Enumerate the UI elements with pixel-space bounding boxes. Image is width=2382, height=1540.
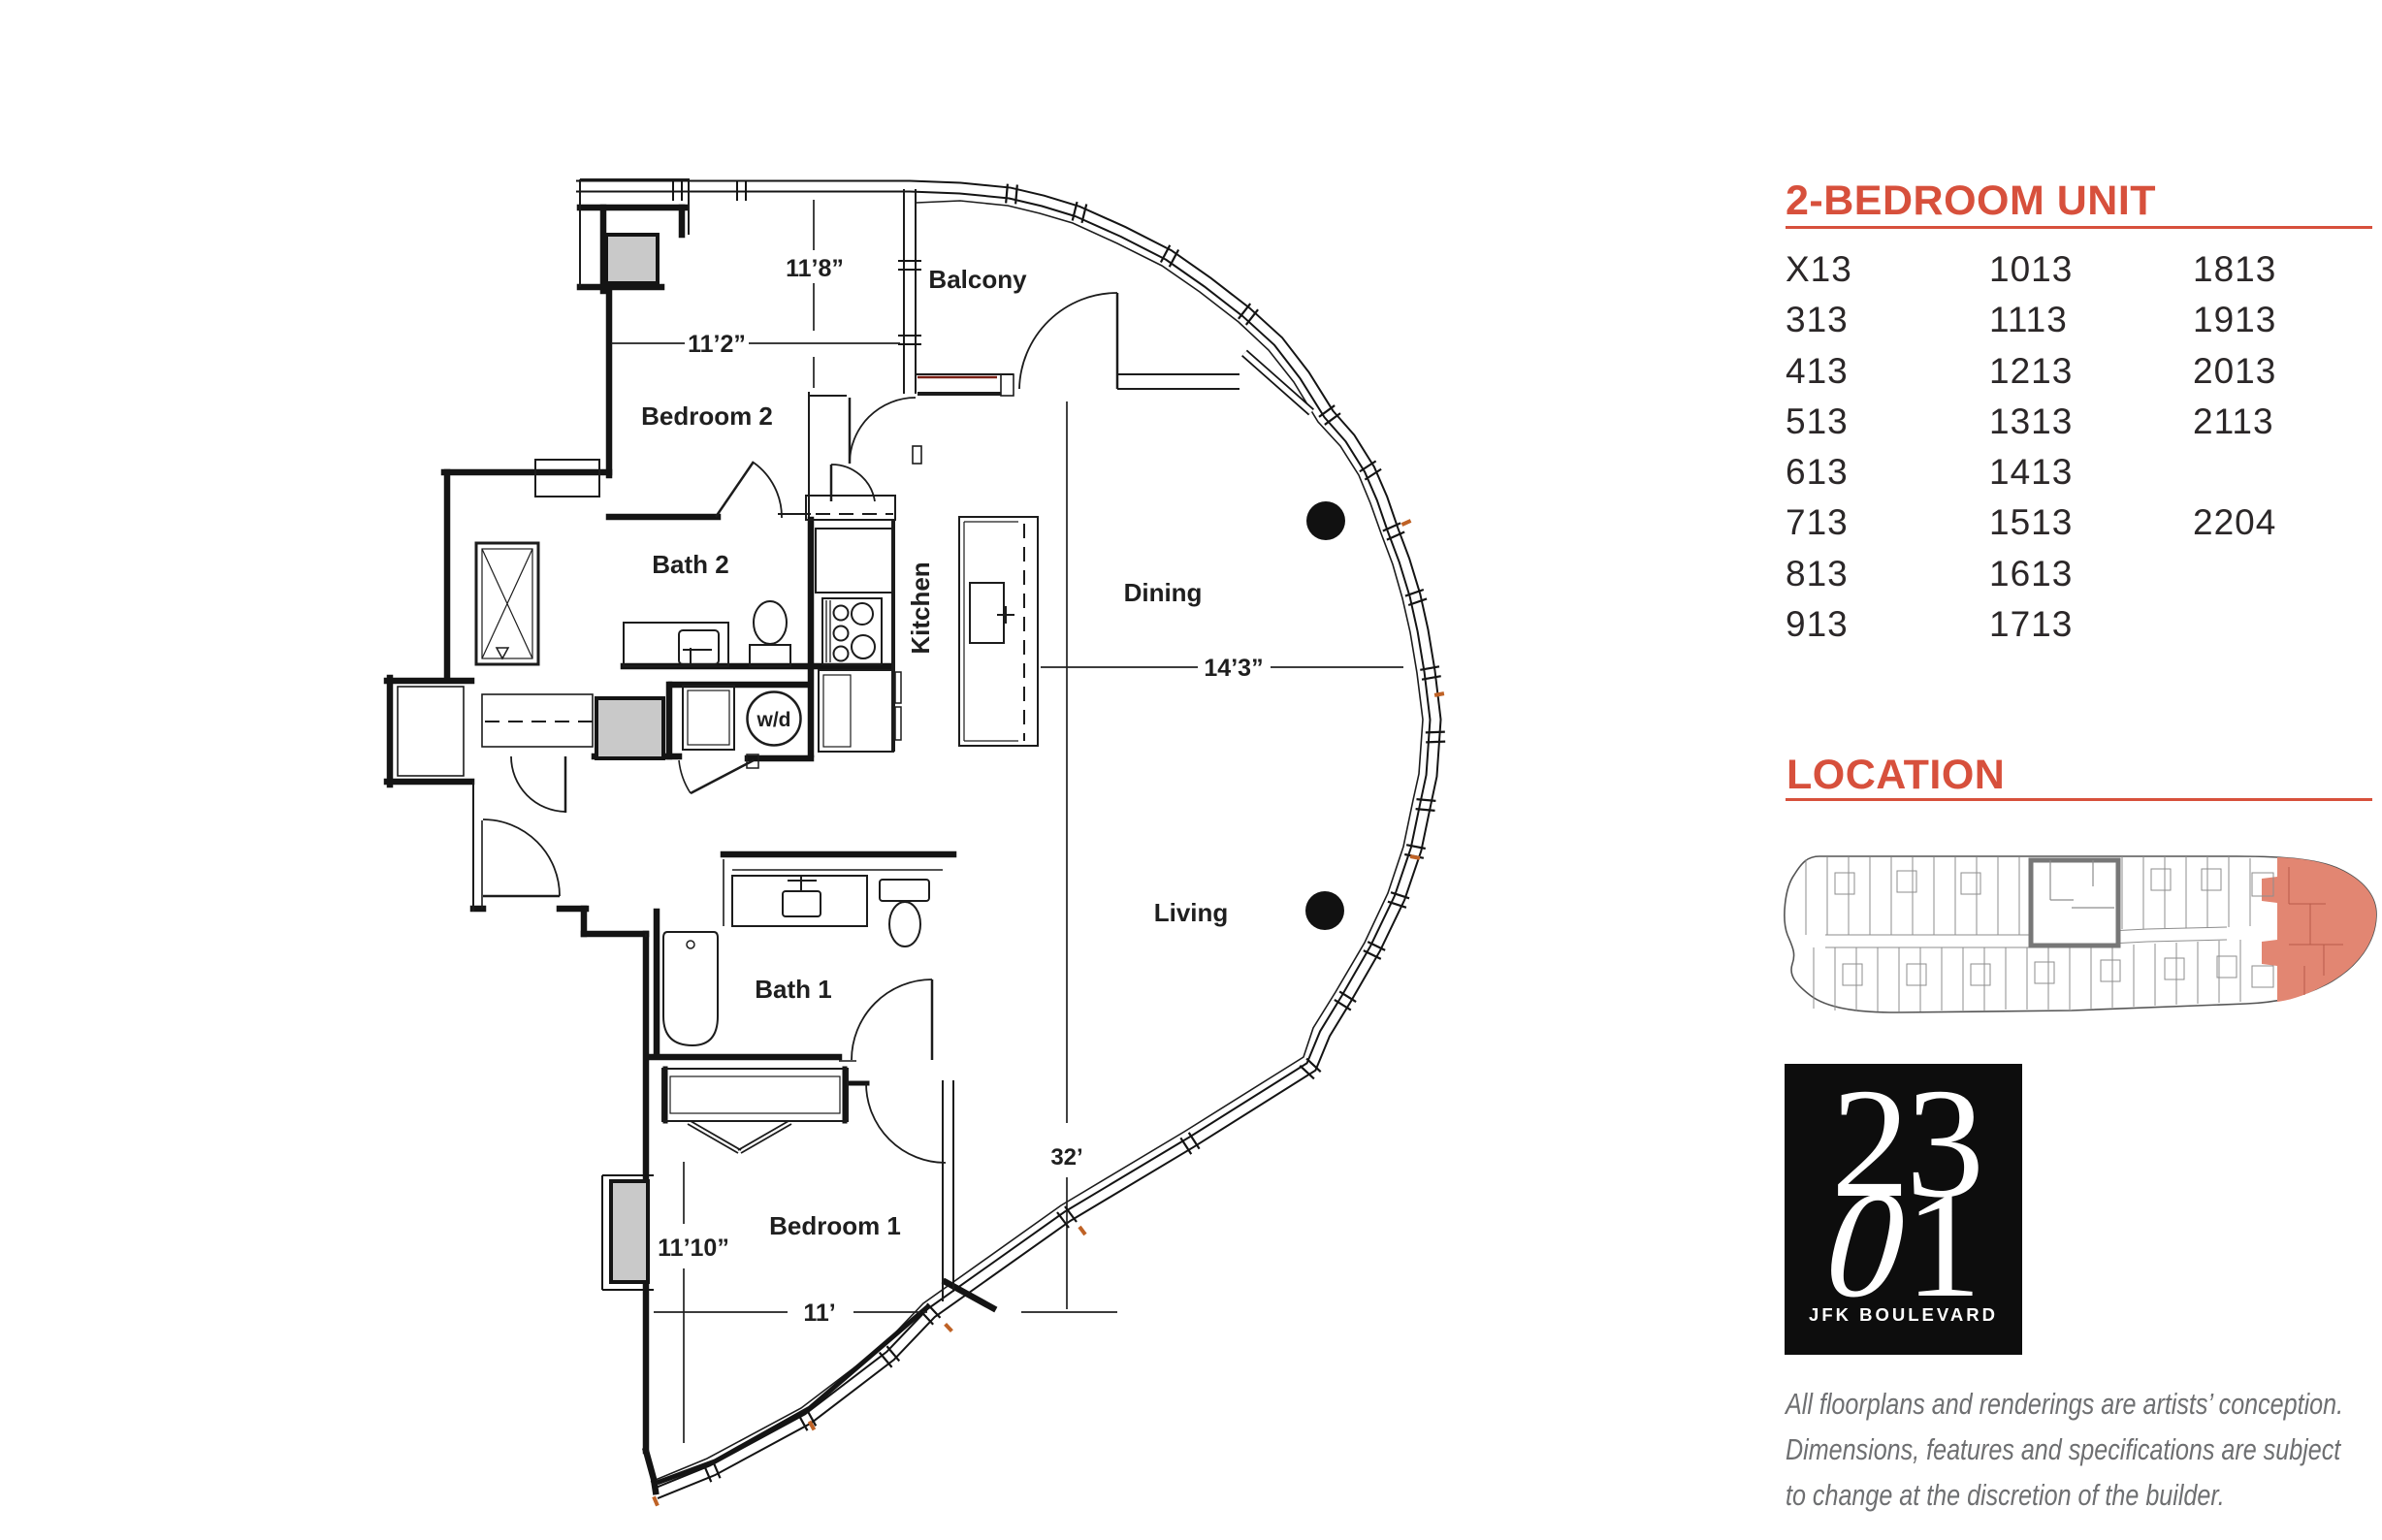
svg-text:11’10”: 11’10”: [658, 1235, 729, 1262]
svg-text:11’2”: 11’2”: [688, 331, 746, 358]
svg-text:Kitchen: Kitchen: [906, 561, 935, 654]
svg-text:Living: Living: [1154, 898, 1229, 927]
svg-text:Bath 2: Bath 2: [652, 550, 728, 579]
svg-text:32’: 32’: [1050, 1144, 1082, 1171]
svg-text:Bedroom 2: Bedroom 2: [641, 401, 773, 431]
svg-text:Bedroom 1: Bedroom 1: [769, 1211, 901, 1240]
svg-text:Bath 1: Bath 1: [755, 975, 831, 1004]
svg-text:Balcony: Balcony: [928, 265, 1027, 294]
svg-text:11’: 11’: [803, 1299, 835, 1327]
svg-text:11’8”: 11’8”: [786, 255, 844, 282]
svg-text:14’3”: 14’3”: [1204, 655, 1263, 682]
svg-text:w/d: w/d: [756, 709, 791, 731]
svg-text:Dining: Dining: [1124, 578, 1203, 607]
